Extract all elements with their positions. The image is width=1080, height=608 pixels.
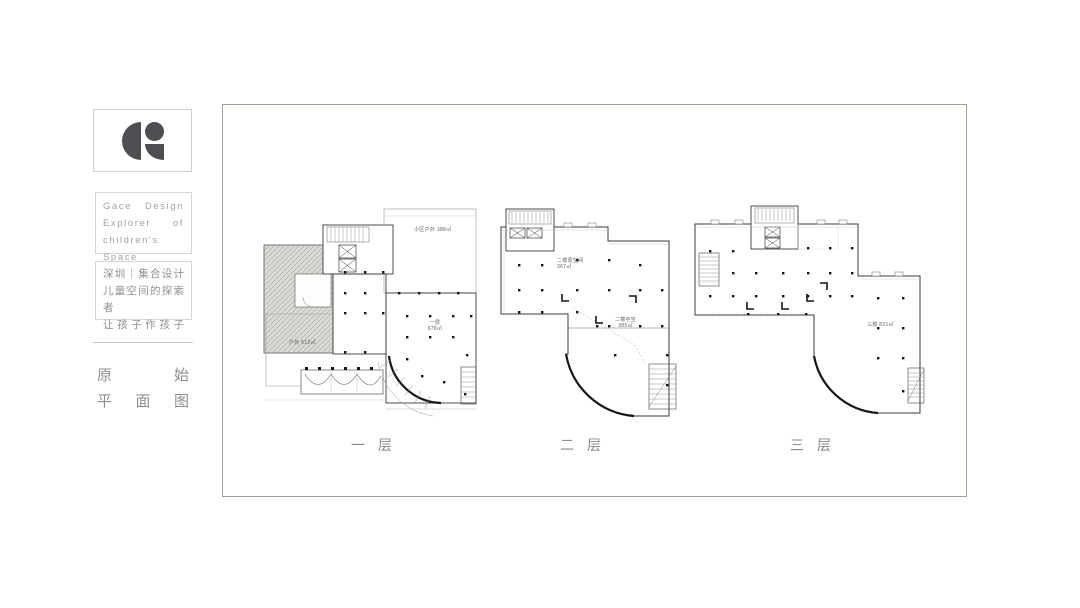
plan3-floor-label: 三楼 831㎡	[867, 322, 894, 328]
sidebar-divider	[93, 342, 193, 343]
brand-text-box: Gace Design Explorer of children's Space	[95, 192, 192, 254]
plan1-outdoor-upper-label: 小区户外 388㎡	[414, 227, 451, 233]
tagline-line: 深圳｜集合设计	[103, 266, 184, 283]
plans-board: 小区户外 388㎡ 一层 678㎡ 户外 512㎡ 二楼原空间 367㎡ 二楼中…	[222, 104, 967, 497]
plan2-space-area: 367㎡	[557, 264, 584, 270]
tagline-text-box: 深圳｜集合设计 儿童空间的探索者 让孩子作孩子	[95, 261, 192, 320]
logo-quarter-shape	[145, 144, 164, 160]
floor-plan-2-drawing	[496, 204, 686, 418]
logo-circle-shape	[145, 122, 164, 141]
plan2-void-label: 二楼中空 385㎡	[603, 317, 648, 329]
section-title-line: 原始	[97, 363, 189, 389]
plan1-caption: 一层	[351, 435, 405, 455]
floor-plan-1-drawing	[261, 204, 479, 418]
logo-box	[93, 109, 192, 172]
plan1-terrace-label: 户外 512㎡	[289, 340, 316, 346]
section-title-line: 平面图	[97, 389, 189, 415]
plan3-caption: 三层	[790, 435, 844, 455]
tagline-line: 让孩子作孩子	[103, 317, 184, 334]
plan2-space-label: 二楼原空间 367㎡	[557, 258, 584, 270]
plan2-void-area: 385㎡	[603, 323, 648, 329]
plan2-caption: 二层	[560, 435, 614, 455]
plan1-floor-label: 一层 678㎡	[415, 320, 455, 332]
floor-plan-3-drawing	[687, 202, 927, 424]
gace-logo-icon	[122, 122, 164, 160]
brand-line: Gace Design	[103, 198, 184, 215]
tagline-line: 儿童空间的探索者	[103, 283, 184, 317]
brand-line: Explorer of	[103, 215, 184, 232]
plan1-floor-area: 678㎡	[415, 326, 455, 332]
section-title: 原始 平面图	[97, 363, 189, 415]
logo-halfcircle-shape	[122, 122, 141, 160]
